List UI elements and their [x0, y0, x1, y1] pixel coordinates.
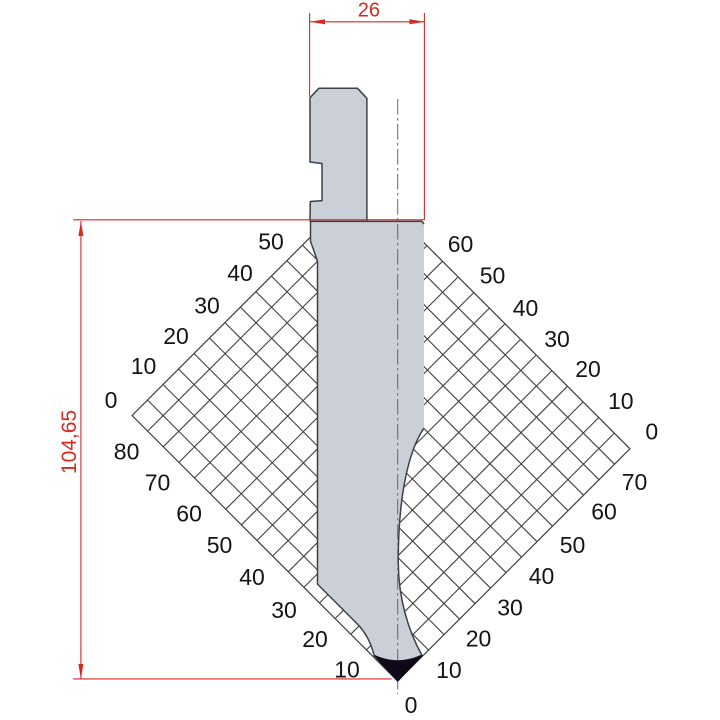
svg-text:104,65: 104,65: [58, 410, 81, 474]
svg-text:20: 20: [302, 626, 328, 652]
svg-text:80: 80: [114, 439, 140, 465]
svg-text:20: 20: [575, 356, 601, 382]
svg-text:30: 30: [544, 326, 570, 352]
svg-text:40: 40: [239, 564, 265, 590]
svg-text:40: 40: [529, 563, 555, 589]
svg-text:60: 60: [176, 501, 202, 527]
svg-text:0: 0: [645, 419, 658, 445]
svg-text:40: 40: [513, 295, 539, 321]
svg-text:50: 50: [480, 263, 506, 289]
svg-text:20: 20: [163, 323, 189, 349]
svg-text:30: 30: [497, 594, 523, 620]
svg-text:30: 30: [194, 293, 220, 319]
svg-text:60: 60: [448, 231, 474, 257]
svg-text:70: 70: [622, 469, 648, 495]
svg-text:20: 20: [466, 626, 492, 652]
svg-text:26: 26: [358, 0, 380, 22]
svg-text:10: 10: [436, 657, 462, 683]
svg-text:10: 10: [131, 353, 157, 379]
svg-text:50: 50: [207, 532, 233, 558]
svg-text:30: 30: [271, 597, 297, 623]
svg-text:0: 0: [105, 387, 118, 413]
svg-text:0: 0: [405, 692, 418, 718]
svg-text:50: 50: [560, 532, 586, 558]
svg-text:40: 40: [227, 260, 253, 286]
svg-text:10: 10: [608, 388, 634, 414]
svg-text:50: 50: [258, 229, 284, 255]
svg-text:60: 60: [591, 499, 617, 525]
svg-text:10: 10: [334, 657, 360, 683]
svg-text:70: 70: [145, 470, 171, 496]
